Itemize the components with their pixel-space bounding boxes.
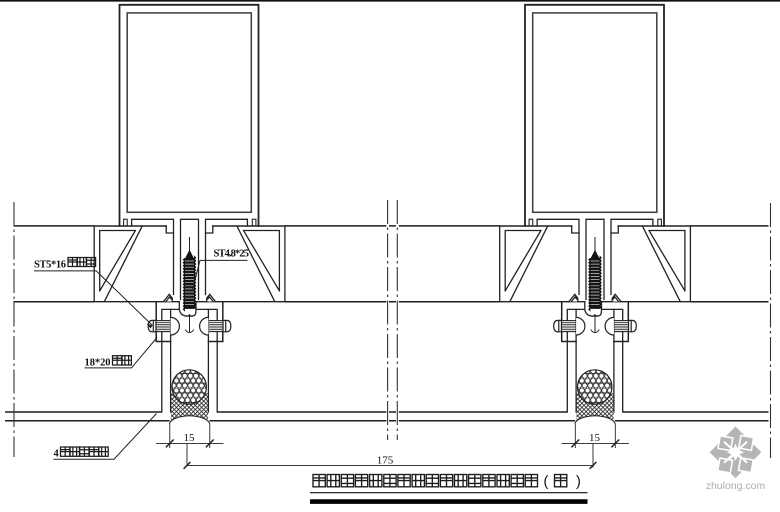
svg-text:): ) (576, 474, 581, 490)
svg-text:(: ( (544, 474, 549, 490)
svg-text:ST5*16: ST5*16 (34, 259, 66, 270)
svg-text:zhulong.com: zhulong.com (706, 480, 766, 492)
svg-text:4: 4 (54, 449, 60, 460)
svg-text:175: 175 (377, 455, 394, 467)
svg-text:ST4.8*25: ST4.8*25 (214, 249, 250, 260)
svg-text:18*20: 18*20 (85, 357, 111, 368)
